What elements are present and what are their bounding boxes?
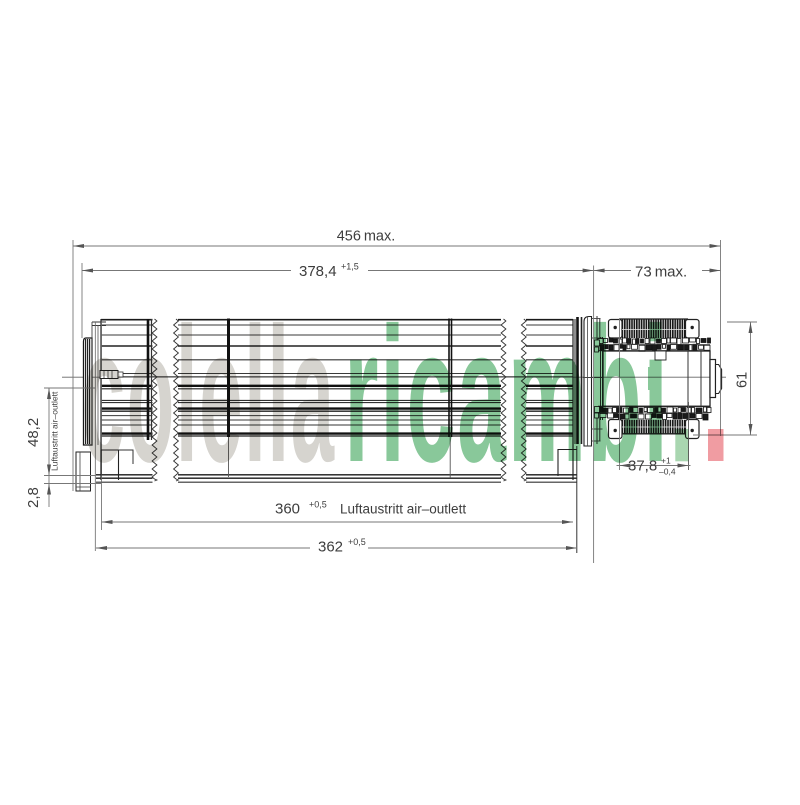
svg-text:colella: colella: [82, 288, 336, 503]
svg-text:360: 360: [275, 501, 300, 518]
svg-text:362: 362: [318, 539, 343, 556]
svg-text:61: 61: [735, 372, 751, 388]
svg-text:ricambi: ricambi: [344, 287, 669, 502]
svg-text:378,4: 378,4: [299, 263, 337, 280]
svg-text:48,2: 48,2: [25, 418, 42, 447]
svg-text:Luftaustritt air–outlett: Luftaustritt air–outlett: [50, 391, 60, 471]
svg-text:Luftaustritt air–outlett: Luftaustritt air–outlett: [340, 502, 466, 517]
svg-text:+0,5: +0,5: [348, 537, 366, 547]
svg-text:456 max.: 456 max.: [337, 229, 396, 245]
svg-text:2,8: 2,8: [25, 487, 42, 508]
svg-text:+1,5: +1,5: [341, 262, 359, 272]
svg-text:73 max.: 73 max.: [635, 264, 687, 281]
